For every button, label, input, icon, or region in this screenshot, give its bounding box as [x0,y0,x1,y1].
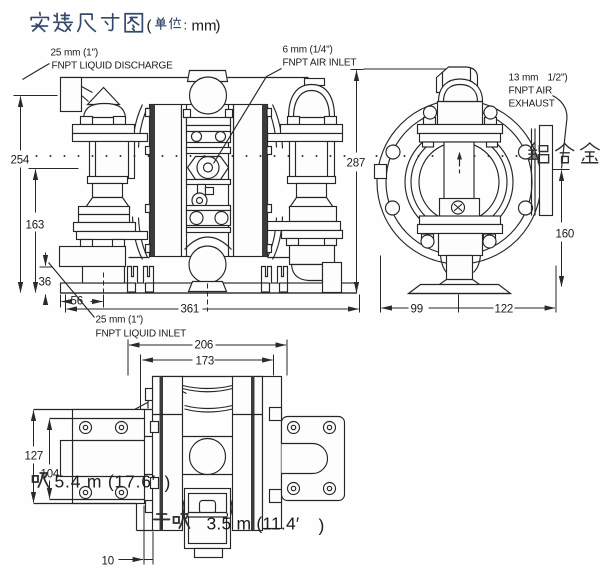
svg-text:): ) [319,516,325,536]
svg-text:EXHAUST: EXHAUST [509,99,555,110]
svg-text:(: ( [147,18,152,35]
svg-text:FNPT AIR: FNPT AIR [509,86,553,97]
svg-text:1/2"): 1/2") [548,73,568,84]
svg-text:36: 36 [39,277,51,289]
svg-text:6 mm (1/4"): 6 mm (1/4") [283,45,333,56]
svg-text:10: 10 [102,556,114,568]
svg-text:163: 163 [26,220,45,232]
svg-text:122: 122 [495,304,514,316]
svg-text:FNPT LIQUID DISCHARGE: FNPT LIQUID DISCHARGE [52,61,174,72]
svg-text:mm: mm [192,18,217,35]
svg-text::: : [184,18,188,33]
svg-text:5.4 m (17.6′: 5.4 m (17.6′ [55,472,156,492]
svg-text:FNPT LIQUID INLET: FNPT LIQUID INLET [96,329,187,340]
svg-text:25 mm (1"): 25 mm (1") [96,315,144,326]
svg-text:3.5 m (11.4′: 3.5 m (11.4′ [207,514,300,534]
svg-text:206: 206 [195,340,214,352]
svg-text:254: 254 [11,155,30,167]
svg-text:173: 173 [196,356,215,368]
svg-text:127: 127 [25,451,44,463]
svg-text:287: 287 [347,158,366,170]
svg-text:160: 160 [556,229,575,241]
svg-text:): ) [216,18,221,35]
svg-text:25 mm (1"): 25 mm (1") [51,48,99,59]
svg-text:99: 99 [411,304,423,316]
svg-text:FNPT AIR INLET: FNPT AIR INLET [283,58,357,69]
svg-text:361: 361 [181,304,200,316]
svg-text:13 mm: 13 mm [509,73,539,84]
svg-text:): ) [165,473,171,493]
